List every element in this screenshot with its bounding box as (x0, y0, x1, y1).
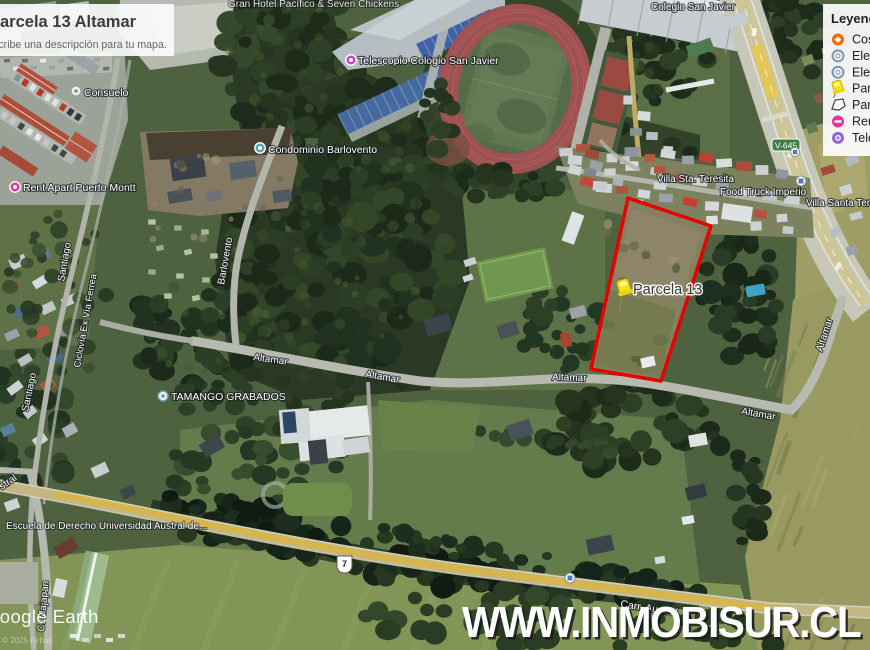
svg-text:Rent Apart Puerto Montt: Rent Apart Puerto Montt (23, 182, 136, 194)
svg-text:Parcela 13: Parcela 13 (852, 98, 870, 112)
svg-text:Telescopio: Telescopio (852, 131, 870, 145)
svg-text:Rent Apart: Rent Apart (852, 115, 870, 129)
svg-text:7: 7 (342, 559, 347, 569)
svg-text:Altamar: Altamar (552, 372, 587, 384)
svg-text:Costanera: Costanera (852, 33, 870, 47)
svg-text:WWW.INMOBISUR.CL: WWW.INMOBISUR.CL (462, 597, 861, 646)
svg-text:Gran Hotel Pacífico & Seven Ch: Gran Hotel Pacífico & Seven Chickens (228, 0, 399, 10)
svg-text:Parcela 13: Parcela 13 (852, 82, 870, 96)
svg-text:Parcela 13 Altamar: Parcela 13 Altamar (0, 13, 137, 31)
svg-text:Parcela 13: Parcela 13 (633, 282, 702, 298)
svg-text:© 2025 Airbus: © 2025 Airbus (2, 636, 52, 645)
svg-text:Escribe una descripción para t: Escribe una descripción para tu mapa. (0, 39, 167, 51)
svg-text:Consuelo: Consuelo (84, 87, 129, 99)
svg-text:Colegio San Javier: Colegio San Javier (651, 2, 736, 13)
svg-text:Google Earth: Google Earth (0, 606, 99, 627)
svg-text:Escuela de Derecho Universida: Escuela de Derecho Universidad Austral d… (6, 521, 207, 532)
svg-text:Villa Santa Teres: Villa Santa Teres (806, 198, 870, 209)
svg-text:Villa Sta. Teresita: Villa Sta. Teresita (657, 174, 734, 185)
svg-text:Condominio Barlovento: Condominio Barlovento (268, 144, 377, 156)
svg-text:Telescopio Cologio San Javier: Telescopio Cologio San Javier (358, 55, 499, 67)
svg-text:TAMANGO GRABADOS: TAMANGO GRABADOS (171, 391, 286, 403)
svg-text:Elemento 1: Elemento 1 (852, 49, 870, 63)
svg-text:Food Truck Imperio: Food Truck Imperio (720, 187, 807, 198)
svg-text:Elemento 2: Elemento 2 (852, 65, 870, 79)
svg-text:Leyenda: Leyenda (831, 11, 870, 26)
